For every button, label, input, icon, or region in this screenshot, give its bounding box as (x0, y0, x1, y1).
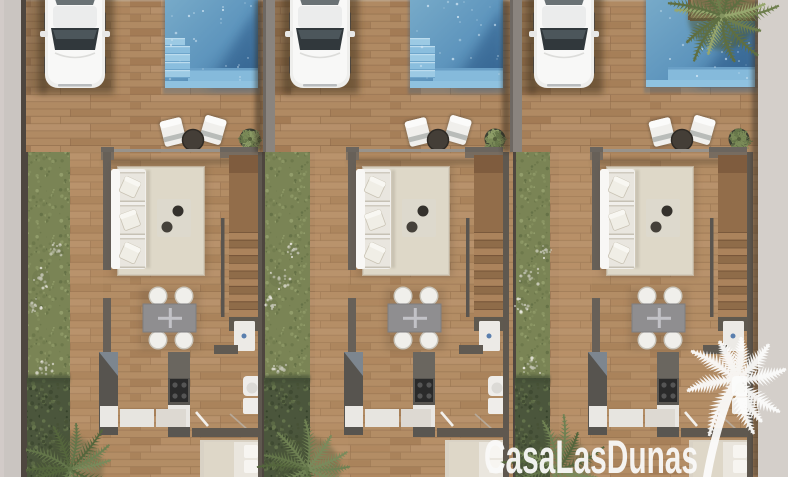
svg-text:CasaLasDunas: CasaLasDunas (484, 430, 698, 477)
